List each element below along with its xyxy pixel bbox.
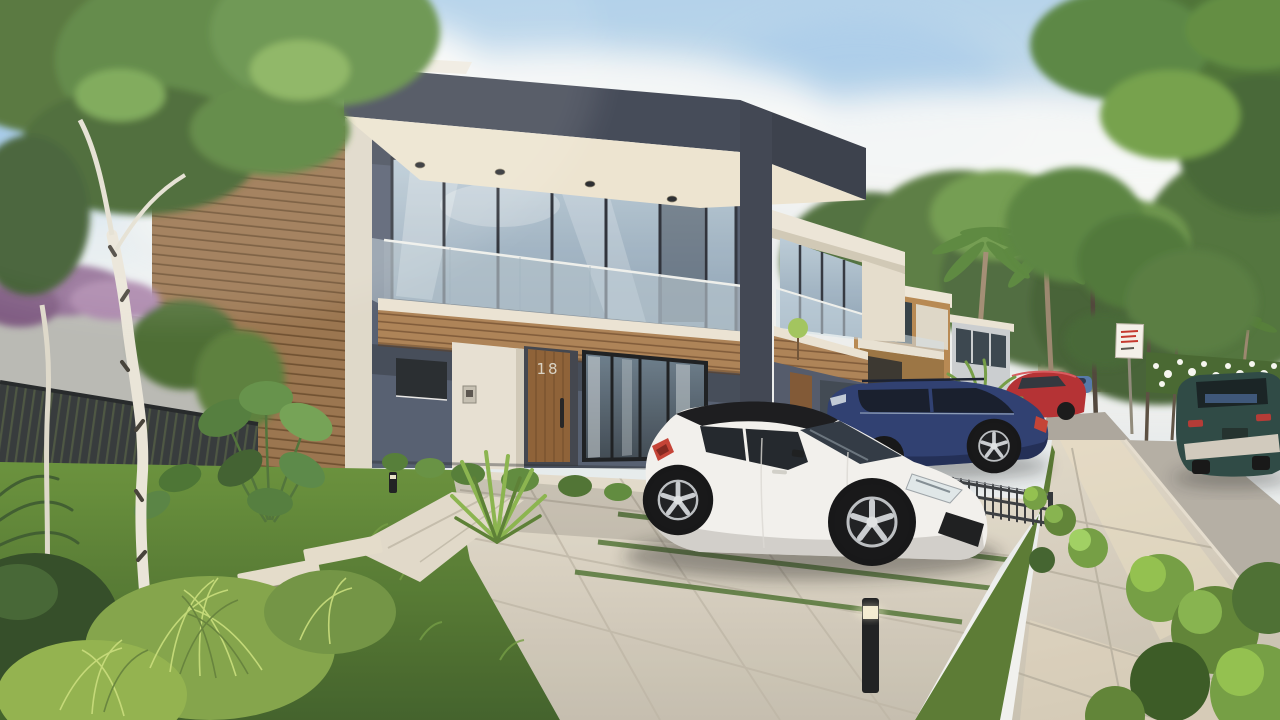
side-window	[396, 358, 447, 400]
house-number: 18	[536, 360, 559, 378]
front-door: 18	[528, 349, 570, 462]
render-image: 18	[0, 0, 1280, 720]
entry: 18	[452, 342, 578, 470]
entry-pillar	[345, 118, 372, 470]
path-light	[389, 472, 397, 493]
intercom-panel	[463, 386, 476, 403]
door-handle	[560, 398, 564, 428]
